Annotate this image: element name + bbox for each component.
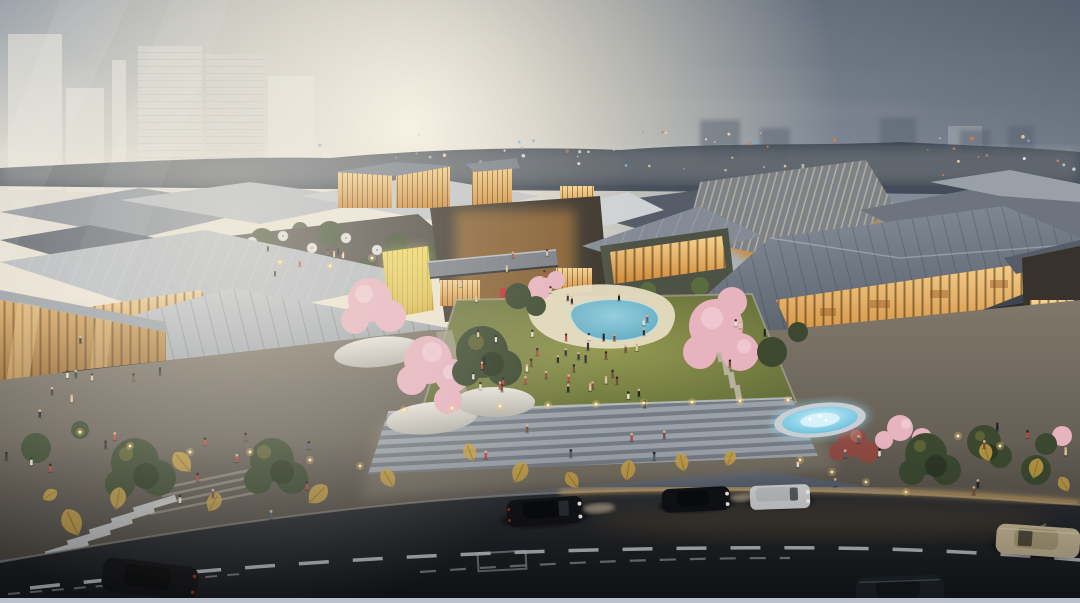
atmosphere-overlays	[0, 0, 1080, 603]
scene-svg	[0, 0, 1080, 603]
bottom-edge-strip	[0, 598, 1080, 603]
rendering-canvas: Aerial dusk rendering of an open-air low…	[0, 0, 1080, 603]
